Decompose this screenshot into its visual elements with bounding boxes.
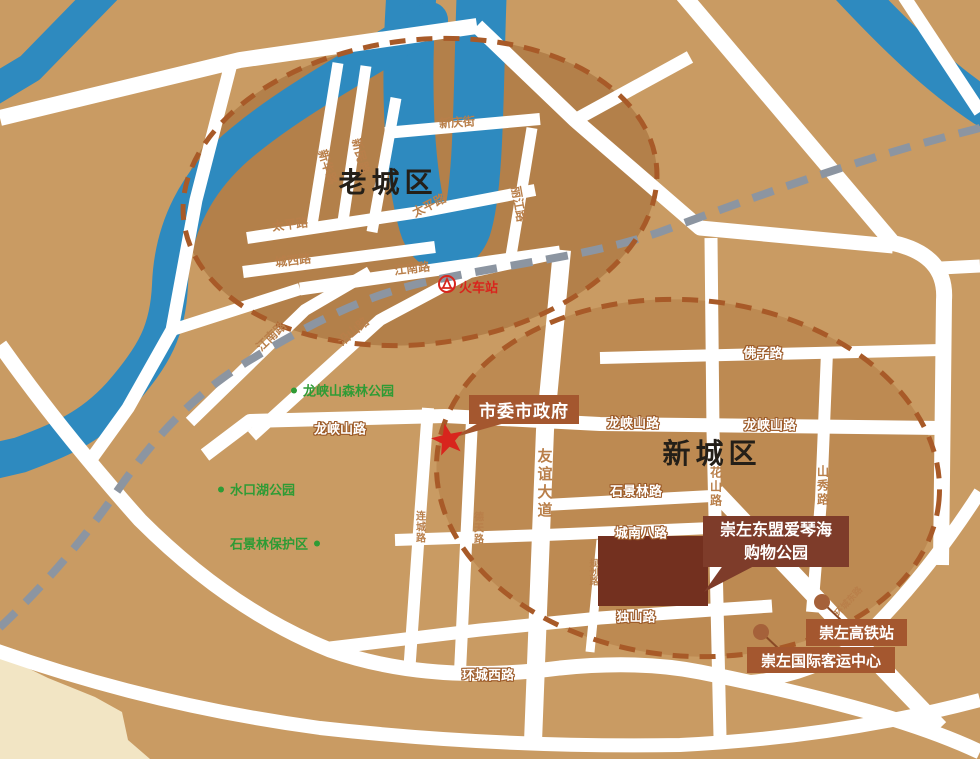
park-longxiashan-forest: 龙峡山森林公园 — [291, 381, 394, 400]
city-map: 老城区 新城区 龙峡山森林公园 水口湖公园 石景林保护区 市委市政府 火车站 崇… — [0, 0, 980, 759]
park-shuikou-lake: 水口湖公园 — [218, 480, 295, 499]
road-label: 独山路 — [616, 607, 655, 626]
road-label: 山秀路 — [815, 465, 832, 507]
train-station-label: 火车站 — [459, 277, 498, 296]
road-label: 环城西路 — [462, 665, 514, 684]
park-dot-icon — [314, 540, 320, 546]
road-label: 丽江路 — [508, 185, 531, 223]
road-label: 江南路 — [252, 317, 290, 354]
government-label-box: 市委市政府 — [469, 395, 579, 424]
park-dot-icon — [218, 486, 224, 492]
reserve-shijinglin: 石景林保护区 — [230, 534, 320, 553]
shopping-park-label-box: 崇左东盟爱琴海 购物公园 — [703, 516, 849, 567]
road-label: 石景林路 — [610, 481, 662, 500]
bus-center-label-box: 崇左国际客运中心 — [747, 647, 895, 673]
road-label: 友谊大道 — [534, 448, 555, 520]
road-label: 龙峡山路 — [744, 415, 796, 434]
road-label: 太平路 — [271, 213, 309, 234]
road-label: 新庆街 — [438, 112, 475, 131]
road-label: 环城东路 — [831, 583, 865, 618]
park-dot-icon — [291, 387, 297, 393]
road-label: 沿山路 — [334, 313, 373, 349]
road-label: 规划路 — [588, 559, 601, 586]
road-label: 连城路 — [412, 511, 427, 544]
road-label: 龙峡山路 — [314, 419, 366, 438]
map-labels: 老城区 新城区 龙峡山森林公园 水口湖公园 石景林保护区 市委市政府 火车站 崇… — [0, 0, 980, 759]
road-label: 城南八路 — [615, 523, 667, 542]
road-label: 龙峡山路 — [607, 413, 659, 432]
old-district-title: 老城区 — [338, 161, 437, 201]
hsr-station-label-box: 崇左高铁站 — [806, 619, 907, 646]
road-label: 城西路 — [274, 249, 312, 270]
road-label: 德天路 — [470, 512, 485, 545]
road-label: 佛子路 — [743, 343, 782, 362]
road-label: 花山路 — [708, 466, 725, 508]
road-label: 江南路 — [393, 257, 431, 278]
